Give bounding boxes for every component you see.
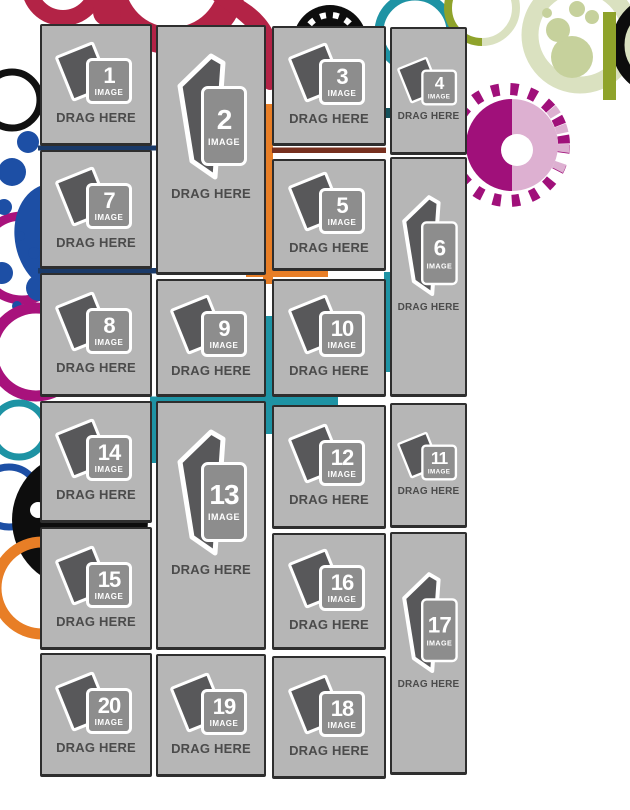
image-number-box: 1 IMAGE [86,58,132,104]
slot-number: 6 [433,237,445,259]
photo-placeholder-icon: 5 IMAGE [293,174,365,236]
image-number-box: 2 IMAGE [201,86,247,166]
collage-template-canvas: 1 IMAGE DRAG HERE 2 IMAGE DRAG HERE 3 IM… [0,0,630,810]
photo-placeholder-icon: 15 IMAGE [60,548,132,610]
image-slot-10[interactable]: 10 IMAGE DRAG HERE [272,279,386,397]
image-slot-17[interactable]: 17 IMAGE DRAG HERE [390,532,467,775]
drag-here-label: DRAG HERE [171,363,251,378]
slot-number: 11 [430,450,447,467]
photo-placeholder-icon: 18 IMAGE [293,677,365,739]
image-label: IMAGE [95,465,124,474]
image-label: IMAGE [328,341,357,350]
slot-number: 4 [434,75,443,92]
photo-placeholder-icon: 1 IMAGE [60,44,132,106]
slot-number: 16 [331,572,353,594]
drag-here-label: DRAG HERE [56,614,136,629]
image-slot-11[interactable]: 11 IMAGE DRAG HERE [390,403,467,528]
slot-number: 3 [336,66,347,88]
image-number-box: 17 IMAGE [421,598,458,662]
photo-placeholder-icon: 19 IMAGE [175,675,247,737]
image-label: IMAGE [95,213,124,222]
image-slot-15[interactable]: 15 IMAGE DRAG HERE [40,527,152,650]
image-slot-2[interactable]: 2 IMAGE DRAG HERE [156,25,266,275]
photo-placeholder-icon: 16 IMAGE [293,551,365,613]
slot-number: 13 [209,481,238,509]
photo-placeholder-icon: 2 IMAGE [175,52,247,182]
drag-here-label: DRAG HERE [171,741,251,756]
slot-number: 5 [336,195,347,217]
image-number-box: 9 IMAGE [201,311,247,357]
image-label: IMAGE [210,341,239,350]
gear-center-dot-icon [501,134,533,166]
image-label: IMAGE [208,512,240,522]
drag-here-label: DRAG HERE [171,562,251,577]
slot-number: 20 [98,695,120,717]
image-label: IMAGE [95,88,124,97]
image-label: IMAGE [328,89,357,98]
image-slot-6[interactable]: 6 IMAGE DRAG HERE [390,157,467,397]
photo-placeholder-icon: 12 IMAGE [293,426,365,488]
photo-placeholder-icon: 3 IMAGE [293,45,365,107]
image-number-box: 8 IMAGE [86,308,132,354]
drag-here-label: DRAG HERE [56,110,136,125]
image-slot-7[interactable]: 7 IMAGE DRAG HERE [40,150,152,269]
slot-number: 7 [103,190,114,212]
drag-here-label: DRAG HERE [398,302,460,313]
olive-ring-right-half-icon [482,0,516,42]
black-ring-icon [0,72,40,128]
photo-placeholder-icon: 6 IMAGE [400,194,458,298]
image-slot-19[interactable]: 19 IMAGE DRAG HERE [156,654,266,777]
image-number-box: 19 IMAGE [201,689,247,735]
drag-here-label: DRAG HERE [171,186,251,201]
photo-placeholder-icon: 13 IMAGE [175,428,247,558]
drag-here-label: DRAG HERE [289,111,369,126]
image-number-box: 12 IMAGE [319,440,365,486]
drag-here-label: DRAG HERE [289,743,369,758]
image-label: IMAGE [328,721,357,730]
image-label: IMAGE [208,137,240,147]
image-label: IMAGE [427,467,449,474]
image-label: IMAGE [95,718,124,727]
image-slot-13[interactable]: 13 IMAGE DRAG HERE [156,401,266,650]
slot-number: 8 [103,315,114,337]
drag-here-label: DRAG HERE [289,492,369,507]
image-slot-16[interactable]: 16 IMAGE DRAG HERE [272,533,386,650]
drag-here-label: DRAG HERE [289,240,369,255]
photo-placeholder-icon: 4 IMAGE [400,59,456,107]
image-number-box: 13 IMAGE [201,462,247,542]
drag-here-label: DRAG HERE [398,111,460,122]
photo-placeholder-icon: 7 IMAGE [60,169,132,231]
image-label: IMAGE [427,93,449,100]
image-label: IMAGE [95,592,124,601]
image-slot-18[interactable]: 18 IMAGE DRAG HERE [272,656,386,779]
image-slot-3[interactable]: 3 IMAGE DRAG HERE [272,26,386,146]
olive-bar-decoration [603,12,616,100]
image-number-box: 4 IMAGE [421,70,457,106]
image-number-box: 7 IMAGE [86,183,132,229]
image-number-box: 3 IMAGE [319,59,365,105]
slot-number: 2 [217,106,232,134]
photo-placeholder-icon: 20 IMAGE [60,674,132,736]
image-number-box: 11 IMAGE [421,444,457,480]
image-slot-4[interactable]: 4 IMAGE DRAG HERE [390,27,467,155]
photo-placeholder-icon: 17 IMAGE [400,571,458,675]
image-label: IMAGE [210,719,239,728]
photo-placeholder-icon: 10 IMAGE [293,297,365,359]
image-slot-9[interactable]: 9 IMAGE DRAG HERE [156,279,266,397]
slot-number: 18 [331,698,353,720]
slot-number: 1 [103,65,114,87]
image-number-box: 5 IMAGE [319,188,365,234]
image-label: IMAGE [328,595,357,604]
photo-placeholder-icon: 9 IMAGE [175,297,247,359]
image-slot-20[interactable]: 20 IMAGE DRAG HERE [40,653,152,777]
image-label: IMAGE [328,470,357,479]
image-number-box: 18 IMAGE [319,691,365,737]
photo-placeholder-icon: 11 IMAGE [400,433,456,481]
image-label: IMAGE [426,638,452,646]
slot-number: 9 [218,318,229,340]
image-label: IMAGE [95,338,124,347]
drag-here-label: DRAG HERE [289,363,369,378]
slot-number: 10 [331,318,353,340]
drag-here-label: DRAG HERE [56,740,136,755]
photo-placeholder-icon: 8 IMAGE [60,294,132,356]
image-label: IMAGE [426,262,452,270]
image-number-box: 10 IMAGE [319,311,365,357]
slot-number: 17 [427,613,450,635]
drag-here-label: DRAG HERE [56,487,136,502]
image-slot-12[interactable]: 12 IMAGE DRAG HERE [272,405,386,529]
image-slot-8[interactable]: 8 IMAGE DRAG HERE [40,273,152,397]
slot-number: 12 [331,447,353,469]
photo-placeholder-icon: 14 IMAGE [60,421,132,483]
image-number-box: 14 IMAGE [86,435,132,481]
image-number-box: 20 IMAGE [86,688,132,734]
slot-number: 15 [98,569,120,591]
slot-number: 19 [213,696,235,718]
image-label: IMAGE [328,218,357,227]
image-number-box: 6 IMAGE [421,221,458,285]
drag-here-label: DRAG HERE [289,617,369,632]
image-number-box: 16 IMAGE [319,565,365,611]
drag-here-label: DRAG HERE [56,235,136,250]
drag-here-label: DRAG HERE [398,486,460,497]
image-slot-1[interactable]: 1 IMAGE DRAG HERE [40,24,152,146]
drag-here-label: DRAG HERE [398,679,460,690]
image-number-box: 15 IMAGE [86,562,132,608]
drag-here-label: DRAG HERE [56,360,136,375]
image-slot-14[interactable]: 14 IMAGE DRAG HERE [40,401,152,523]
image-slot-5[interactable]: 5 IMAGE DRAG HERE [272,159,386,271]
slot-number: 14 [98,442,120,464]
